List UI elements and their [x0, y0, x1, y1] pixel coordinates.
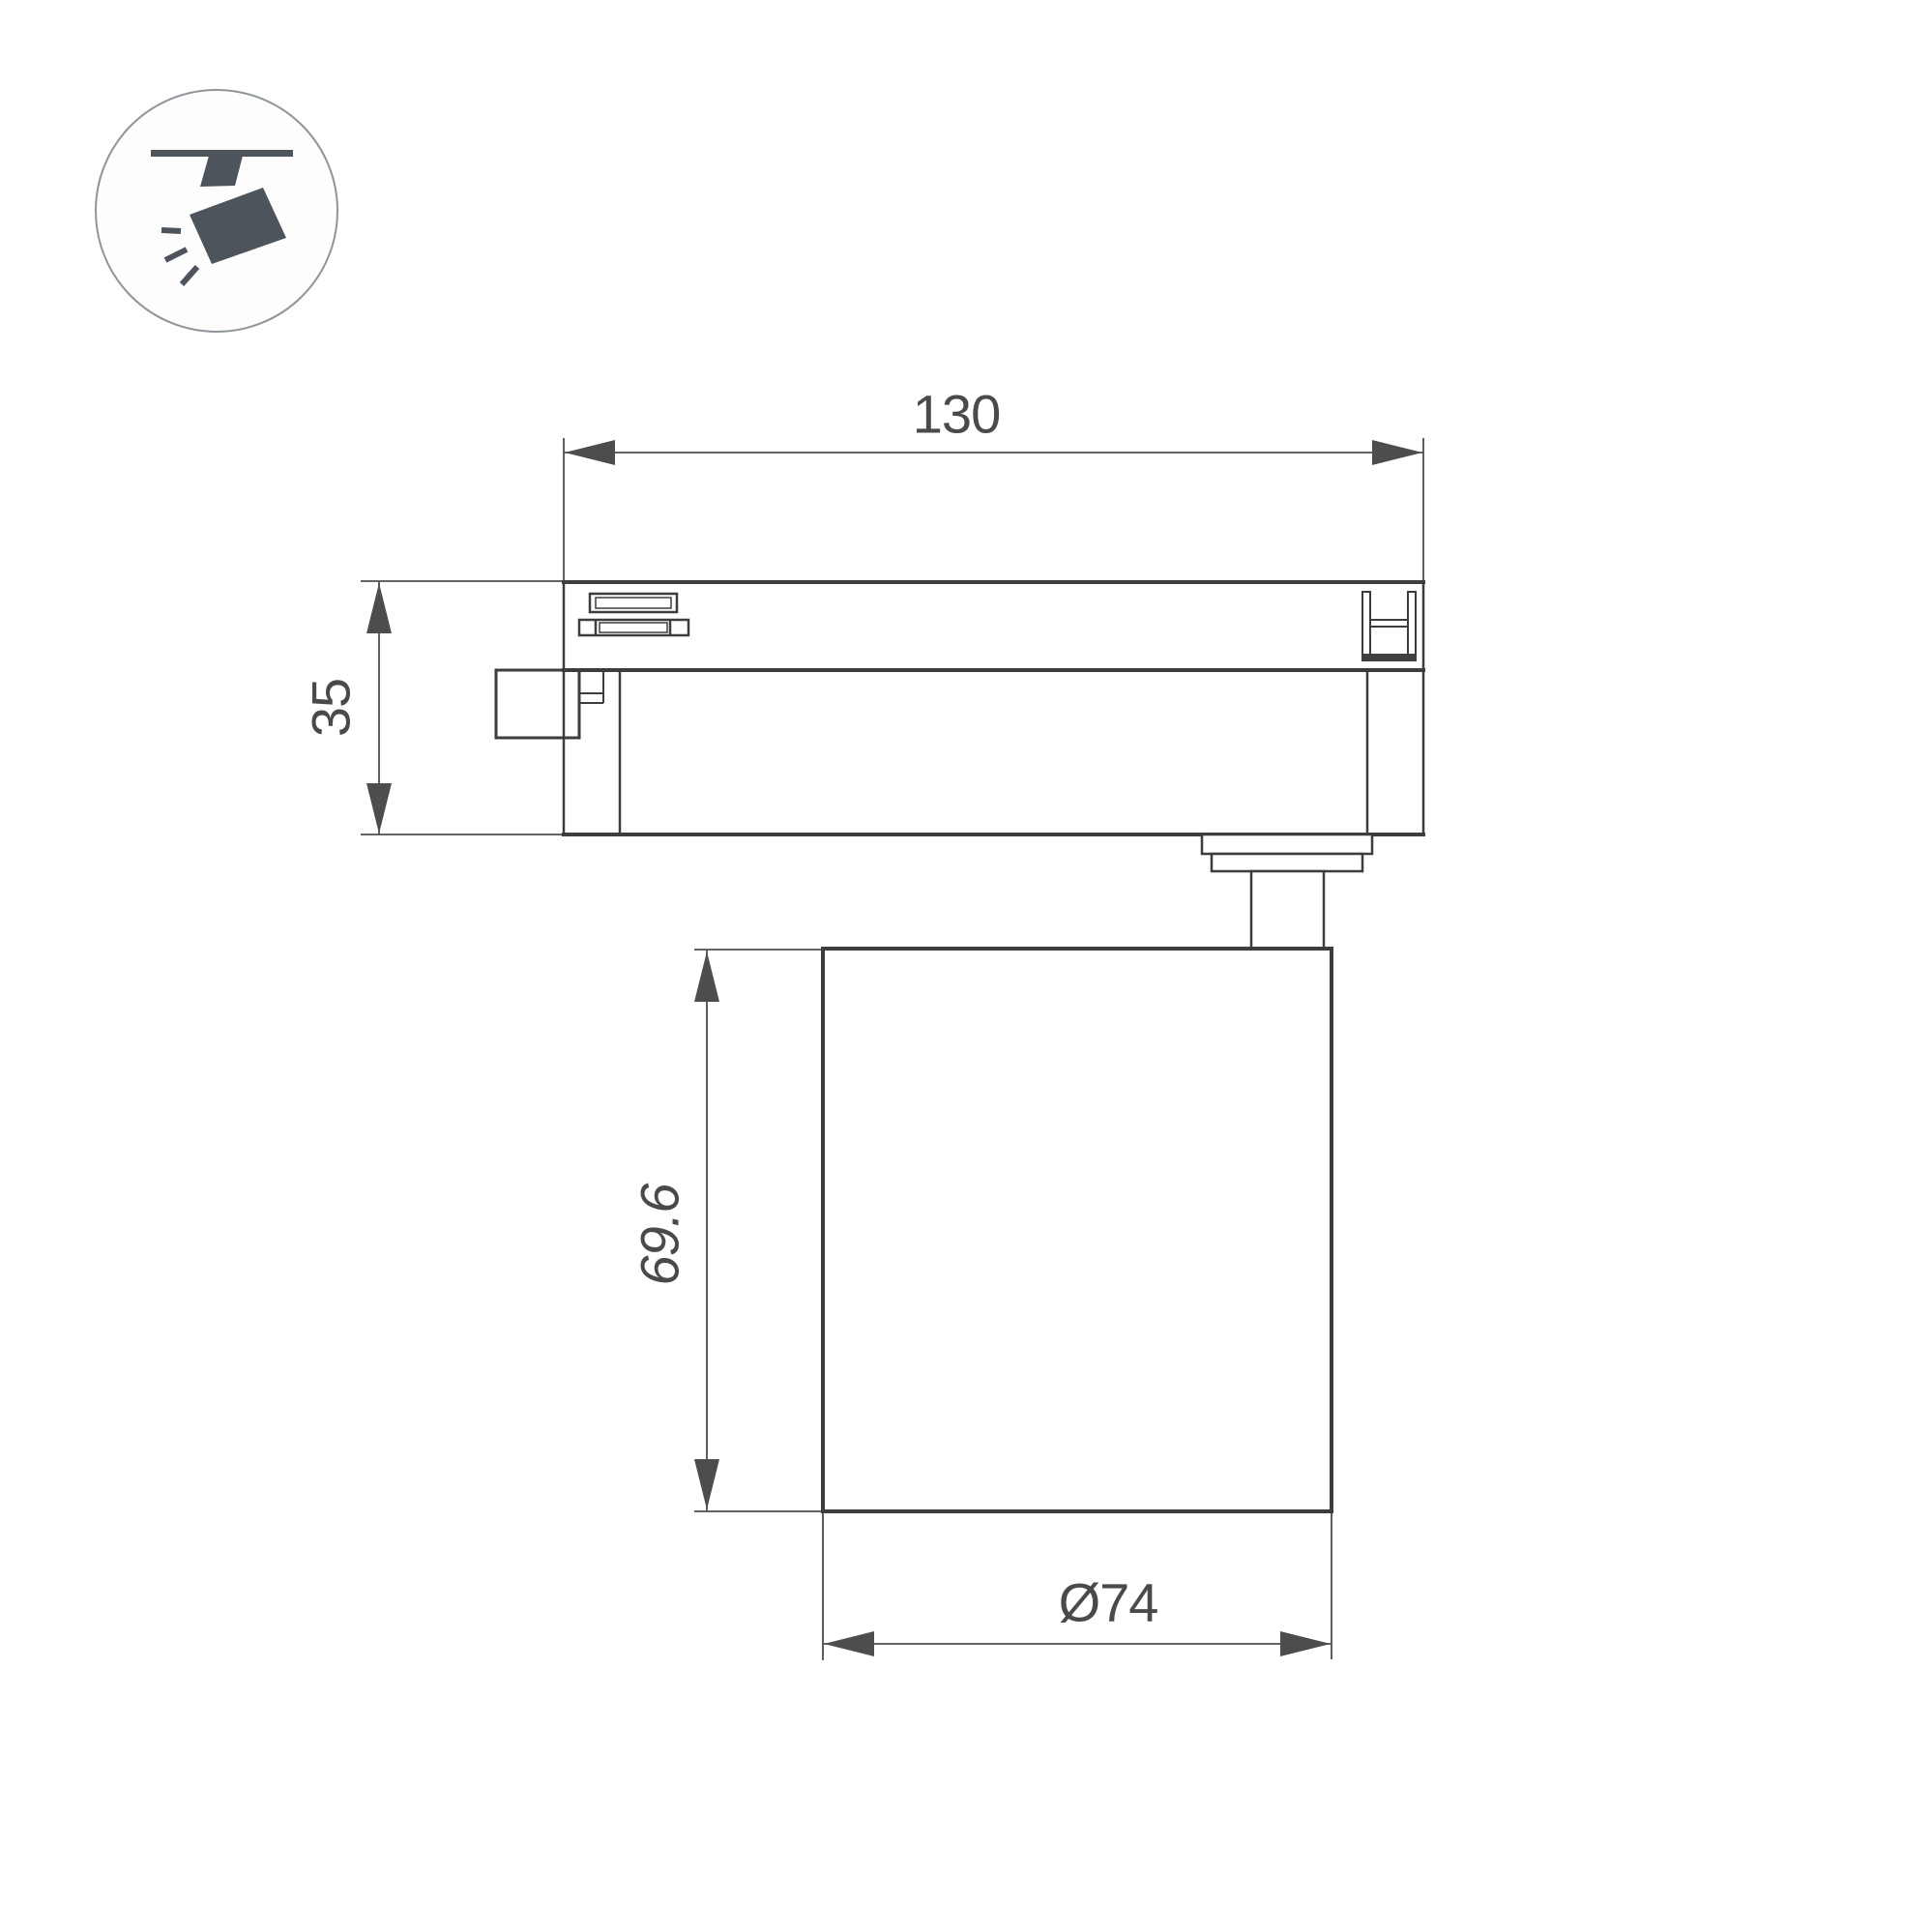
dimension-label-adapter-width: 130	[913, 384, 1000, 445]
icon-light-ray	[161, 230, 181, 231]
dimension-body-height: 69.6	[629, 950, 822, 1511]
dimension-body-diameter: Ø74	[823, 1513, 1332, 1660]
dimension-adapter-height: 35	[301, 581, 563, 834]
dimension-label-body-height: 69.6	[629, 1183, 690, 1286]
arrowhead-down	[366, 783, 392, 834]
track-spotlight-icon	[96, 90, 337, 332]
joint-stem	[1251, 871, 1324, 949]
arrowhead-up	[694, 951, 719, 1002]
adapter-contact-clip-lower	[579, 620, 688, 635]
dimension-adapter-width: 130	[564, 384, 1423, 581]
joint-flange-lower	[1212, 854, 1362, 871]
adapter-latch	[1362, 592, 1416, 661]
drawing-svg: 130 35 69.6 Ø74	[0, 0, 1932, 1932]
clip-outer	[590, 594, 677, 612]
technical-drawing-canvas: 130 35 69.6 Ø74	[0, 0, 1932, 1932]
icon-track-bar	[151, 150, 293, 157]
adapter-lock-hook	[579, 671, 603, 703]
dimension-label-body-diameter: Ø74	[1059, 1572, 1158, 1633]
latch-leg-right	[1408, 592, 1416, 660]
arrowhead-left	[824, 1631, 874, 1656]
arrowhead-up	[366, 583, 392, 633]
latch-base	[1363, 654, 1416, 661]
arrowhead-right	[1372, 440, 1422, 465]
dimension-label-adapter-height: 35	[301, 679, 362, 737]
latch-rung	[1370, 620, 1408, 627]
adapter-contact-clip-upper	[590, 594, 677, 612]
track-adapter-outline	[496, 582, 1425, 949]
lamp-body-outline	[823, 949, 1332, 1511]
joint-flange-upper	[1202, 834, 1372, 854]
latch-leg-left	[1362, 592, 1370, 660]
arrowhead-down	[694, 1459, 719, 1509]
adapter-lock-lever	[496, 670, 579, 738]
arrowhead-left	[565, 440, 615, 465]
arrowhead-right	[1280, 1631, 1331, 1656]
